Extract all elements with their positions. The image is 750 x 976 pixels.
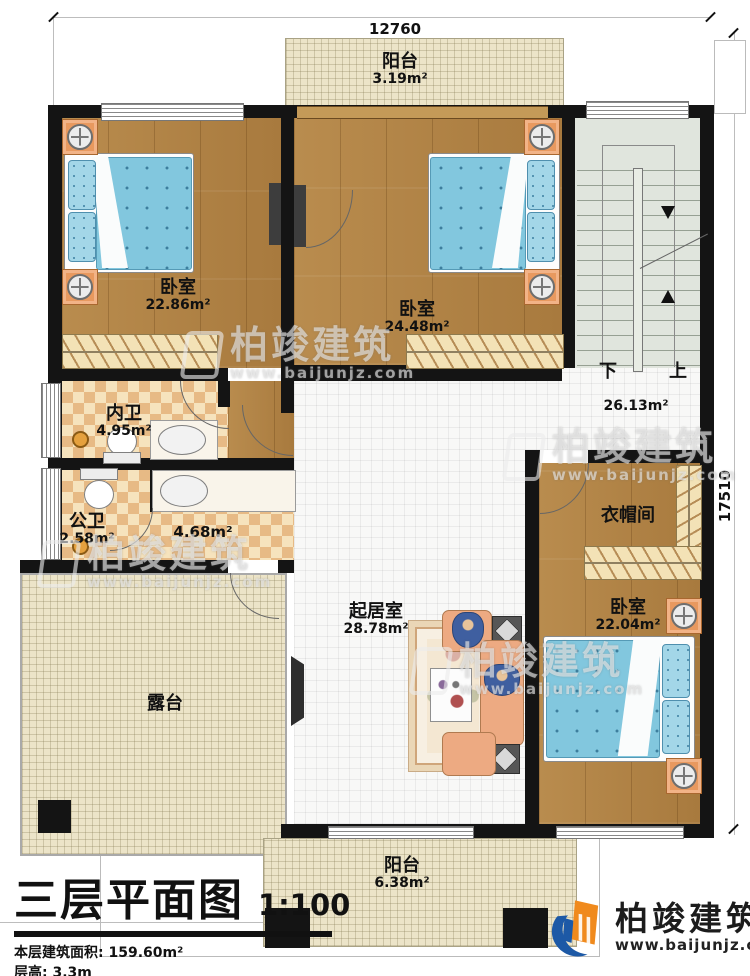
wall-terrace-b <box>278 560 294 573</box>
toilet-tank <box>103 452 141 464</box>
stair-arrow-down-icon <box>661 206 675 219</box>
stair-arrow-up-icon <box>661 290 675 303</box>
room-label-bedroom-right: 卧室 22.04m² <box>568 598 688 634</box>
pillow <box>662 700 690 754</box>
room-name: 露台 <box>105 694 225 714</box>
extension-line-top-left <box>53 17 54 105</box>
pillow <box>662 644 690 698</box>
window-stairs <box>586 101 689 119</box>
pillar <box>38 800 71 833</box>
stair-rail <box>633 168 643 372</box>
coffee-table <box>430 668 472 722</box>
wardrobe-rail <box>688 466 690 549</box>
room-area: 4.68m² <box>143 524 263 541</box>
wardrobe <box>406 334 564 369</box>
person-figure <box>452 612 484 648</box>
room-label-balcony-bottom: 阳台 6.38m² <box>342 856 462 892</box>
wall-living-cloakroom <box>525 450 539 824</box>
room-label-terrace: 露台 <box>105 694 225 714</box>
room-label-balcony-top: 阳台 3.19m² <box>340 52 460 88</box>
room-area: 6.38m² <box>342 876 462 892</box>
wardrobe <box>62 334 218 369</box>
lamp-icon <box>529 274 555 300</box>
room-label-wash-area: 4.68m² <box>143 524 263 541</box>
stair-up-label: 上 <box>669 361 687 382</box>
door-leaf-bedroom-mid <box>294 185 306 247</box>
brand-logo-icon <box>545 893 607 963</box>
room-name: 内卫 <box>64 404 184 424</box>
stair-down-label: 下 <box>599 361 617 382</box>
room-name: 阳台 <box>340 52 460 72</box>
wall-hall-cloakroom-b <box>588 450 714 463</box>
room-label-public-bath: 公卫 2.58m² <box>27 512 147 548</box>
balcony-door-bottom <box>328 826 474 839</box>
room-name: 阳台 <box>342 856 462 876</box>
plan-title: 三层平面图 <box>14 864 244 928</box>
room-name: 卧室 <box>118 278 238 298</box>
exterior-outline <box>714 40 746 114</box>
dimension-line-right <box>734 33 735 835</box>
table-decor <box>492 746 517 771</box>
wall-stairs-left <box>562 105 575 368</box>
brand-url: www.baijunjz.com <box>615 936 750 954</box>
lamp-icon <box>671 763 697 789</box>
balcony-door-top <box>297 106 548 119</box>
floor-area-line: 本层建筑面积: 159.60m² <box>14 943 350 963</box>
floor-plan: 12760 17510 <box>0 0 750 976</box>
person-figure <box>484 664 520 696</box>
dimension-height-label: 17510 <box>716 470 734 522</box>
door-leaf-bedroom-left <box>269 183 281 245</box>
nightstand <box>524 119 560 155</box>
dimension-width-label: 12760 <box>355 20 435 38</box>
room-label-bedroom-left: 卧室 22.86m² <box>118 278 238 314</box>
title-rule <box>14 931 332 937</box>
lamp-icon <box>67 274 93 300</box>
sink-icon <box>160 475 208 507</box>
room-area: 2.58m² <box>27 532 147 548</box>
toilet-tank <box>80 468 118 480</box>
nightstand <box>666 758 702 794</box>
room-name: 衣帽间 <box>568 506 688 526</box>
brand-name: 柏竣建筑 <box>615 902 750 937</box>
toilet-icon <box>84 480 114 509</box>
wall-bedroom-bath <box>48 368 228 381</box>
room-label-ensuite-bath: 内卫 4.95m² <box>64 404 184 440</box>
room-area: 4.95m² <box>64 424 184 440</box>
tv-icon <box>291 656 304 726</box>
lamp-icon <box>67 124 93 150</box>
room-area: 3.19m² <box>340 72 460 88</box>
nightstand <box>524 269 560 305</box>
dimension-line-top <box>53 17 710 18</box>
stair-guide <box>602 145 603 367</box>
window-bedroom-left <box>101 103 244 121</box>
room-area: 28.78m² <box>316 622 436 638</box>
room-label-bedroom-mid: 卧室 24.48m² <box>357 300 477 336</box>
window-ensuite-bath <box>41 383 61 458</box>
room-area: 22.86m² <box>118 298 238 314</box>
room-name: 卧室 <box>568 598 688 618</box>
wardrobe <box>584 546 702 580</box>
wall-right <box>700 105 714 838</box>
floor-height-line: 层高: 3.3m <box>14 963 350 976</box>
pillow <box>68 212 96 262</box>
brand-logo: 柏竣建筑 www.baijunjz.com <box>545 893 750 963</box>
title-block: 三层平面图 1:100 本层建筑面积: 159.60m² 层高: 3.3m <box>14 864 350 976</box>
wall-bedrooms-divider <box>281 105 294 413</box>
nightstand <box>62 119 98 155</box>
room-name: 公卫 <box>27 512 147 532</box>
wall-terrace-a <box>20 560 228 573</box>
room-label-cloakroom: 衣帽间 <box>568 506 688 526</box>
stair-hall-area: 26.13m² <box>603 398 668 414</box>
pillow <box>527 160 555 210</box>
stair-guide <box>674 145 675 367</box>
nightstand <box>62 269 98 305</box>
pillow <box>68 160 96 210</box>
stair-guide <box>602 145 675 146</box>
pillar <box>503 908 548 948</box>
wardrobe-rail <box>585 562 701 564</box>
wardrobe-rail <box>407 351 563 353</box>
room-label-living: 起居室 28.78m² <box>316 602 436 638</box>
room-name: 起居室 <box>316 602 436 622</box>
window-bedroom-right <box>556 826 684 839</box>
plan-scale: 1:100 <box>258 888 350 922</box>
pillow <box>527 212 555 262</box>
lamp-icon <box>529 124 555 150</box>
wardrobe-rail <box>63 351 217 353</box>
room-name: 卧室 <box>357 300 477 320</box>
armchair <box>442 732 496 776</box>
room-area: 22.04m² <box>568 618 688 634</box>
room-area: 24.48m² <box>357 320 477 336</box>
